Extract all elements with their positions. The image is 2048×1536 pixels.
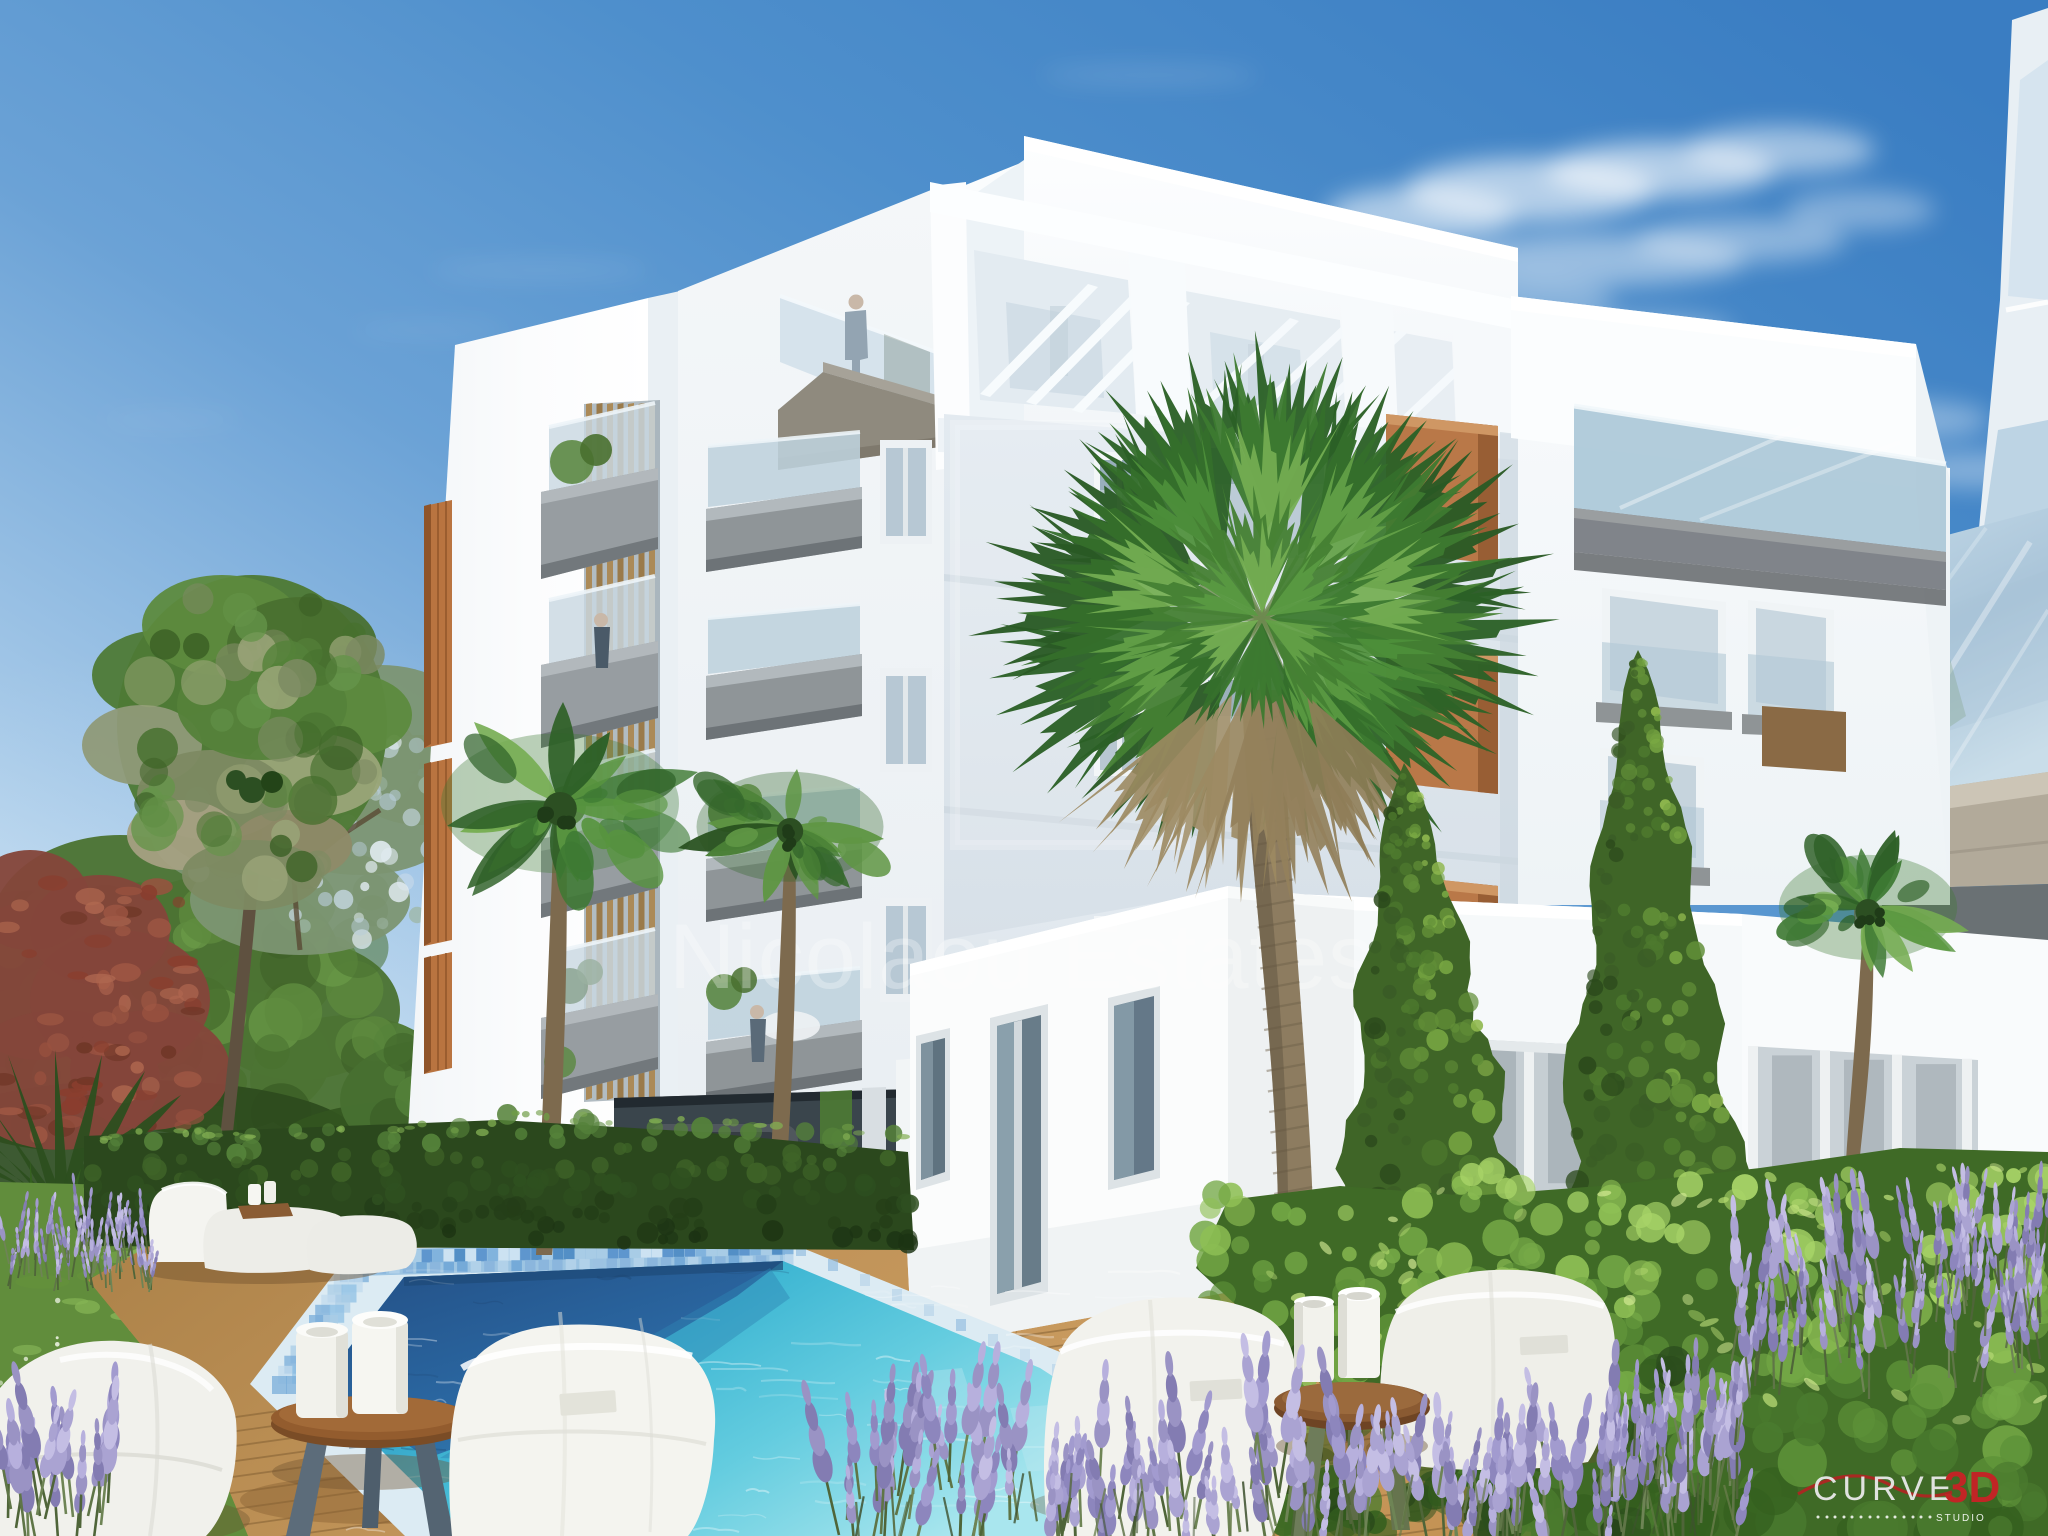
svg-text:STUDIO: STUDIO	[1936, 1513, 1986, 1524]
svg-text:CURVE: CURVE	[1813, 1470, 1956, 1508]
svg-text:3D: 3D	[1944, 1463, 2000, 1512]
